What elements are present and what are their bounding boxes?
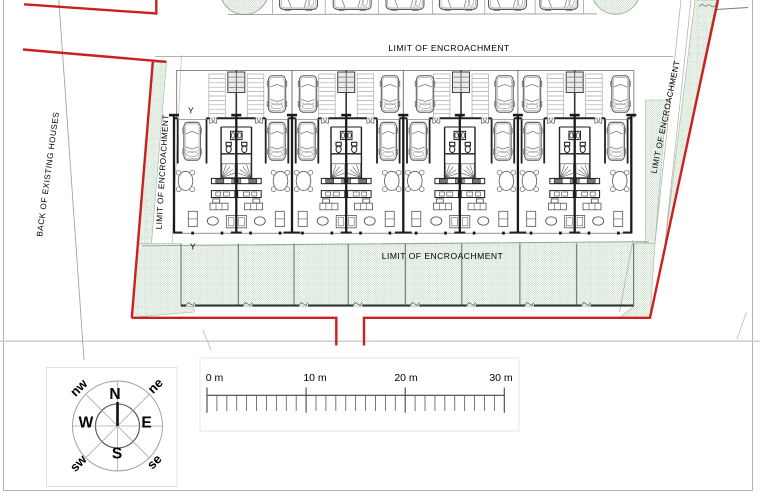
svg-text:Y: Y (188, 106, 194, 116)
svg-text:10 m: 10 m (303, 372, 327, 384)
svg-text:20 m: 20 m (394, 372, 418, 384)
svg-text:S: S (112, 446, 122, 463)
svg-text:W: W (79, 415, 94, 432)
svg-text:E: E (141, 415, 151, 432)
svg-text:30 m: 30 m (489, 372, 513, 384)
svg-text:N: N (109, 386, 120, 403)
svg-text:LIMIT OF ENCROACHMENT: LIMIT OF ENCROACHMENT (388, 43, 510, 53)
svg-text:0 m: 0 m (206, 372, 224, 384)
svg-text:Y: Y (190, 242, 196, 252)
svg-text:LIMIT OF ENCROACHMENT: LIMIT OF ENCROACHMENT (382, 251, 504, 261)
